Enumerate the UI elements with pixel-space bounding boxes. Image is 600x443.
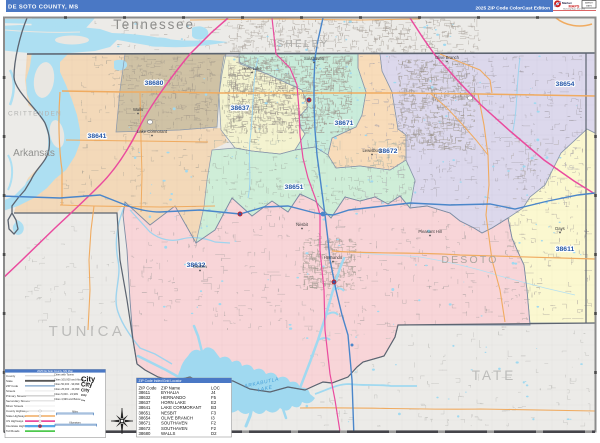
svg-text:Nesbit: Nesbit bbox=[296, 222, 309, 227]
svg-text:TUNICA: TUNICA bbox=[49, 323, 126, 340]
svg-text:38671: 38671 bbox=[335, 120, 354, 127]
svg-text:Lake Cormorant: Lake Cormorant bbox=[137, 129, 168, 134]
svg-text:Hernando: Hernando bbox=[324, 255, 343, 260]
svg-text:Cities 100,000 and Above: Cities 100,000 and Above bbox=[54, 377, 84, 381]
svg-text:38611: 38611 bbox=[556, 246, 575, 253]
svg-text:2025 ZIP Code ColorCast Editio: 2025 ZIP Code ColorCast Edition bbox=[475, 5, 550, 11]
svg-text:Cities with Towns: Cities with Towns bbox=[54, 372, 75, 376]
svg-text:Miles: Miles bbox=[72, 410, 78, 413]
svg-text:38654: 38654 bbox=[556, 81, 575, 88]
svg-text:Olive Branch: Olive Branch bbox=[435, 55, 460, 60]
svg-text:ZIP Code Index/Grid Locator: ZIP Code Index/Grid Locator bbox=[139, 379, 183, 383]
svg-text:TATE: TATE bbox=[472, 368, 517, 383]
svg-text:Minor Streets: Minor Streets bbox=[6, 404, 24, 408]
svg-text:Cities 50,000 - 99,999: Cities 50,000 - 99,999 bbox=[54, 382, 80, 386]
svg-text:City: City bbox=[81, 393, 87, 397]
svg-text:WALLS: WALLS bbox=[161, 431, 176, 436]
svg-text:Cities 4,999 and Below: Cities 4,999 and Below bbox=[54, 397, 81, 401]
svg-text:Cities 25,000 - 49,999: Cities 25,000 - 49,999 bbox=[54, 387, 80, 391]
svg-text:Pleasant Hill: Pleasant Hill bbox=[418, 229, 441, 234]
svg-text:Cities 5,000 - 24,999: Cities 5,000 - 24,999 bbox=[54, 392, 78, 396]
svg-text:City: City bbox=[81, 387, 90, 392]
svg-text:38680: 38680 bbox=[139, 431, 152, 436]
svg-text:State Highways: State Highways bbox=[6, 414, 27, 418]
svg-text:Marketing Maps That Work: Marketing Maps That Work bbox=[563, 8, 585, 11]
svg-text:Streets: Streets bbox=[6, 389, 16, 393]
svg-text:Southaven: Southaven bbox=[304, 56, 325, 61]
svg-text:Eudora: Eudora bbox=[193, 264, 207, 269]
svg-text:38637: 38637 bbox=[231, 105, 250, 112]
svg-text:US Highways: US Highways bbox=[6, 419, 24, 423]
svg-text:Days: Days bbox=[555, 226, 565, 231]
svg-text:State: State bbox=[6, 379, 13, 383]
svg-text:CRITTENDEN: CRITTENDEN bbox=[8, 111, 62, 118]
svg-text:38680: 38680 bbox=[145, 80, 164, 87]
svg-text:SHELBY: SHELBY bbox=[277, 39, 330, 50]
svg-text:Arkansas: Arkansas bbox=[13, 148, 55, 159]
svg-text:MARKET: MARKET bbox=[585, 2, 594, 5]
svg-text:Horn Lake: Horn Lake bbox=[242, 66, 262, 71]
svg-text:ZIP Code: ZIP Code bbox=[6, 384, 19, 388]
svg-text:D2: D2 bbox=[211, 431, 217, 436]
svg-text:38641: 38641 bbox=[88, 133, 107, 140]
svg-text:DESOTO: DESOTO bbox=[441, 254, 498, 266]
svg-text:Walls: Walls bbox=[133, 107, 143, 112]
svg-text:Toll Roads: Toll Roads bbox=[6, 429, 20, 433]
svg-text:38651: 38651 bbox=[285, 184, 304, 191]
svg-text:DE SOTO COUNTY, MS: DE SOTO COUNTY, MS bbox=[8, 5, 79, 11]
svg-text:MAPS: MAPS bbox=[586, 5, 592, 8]
svg-text:Lewisburg: Lewisburg bbox=[362, 148, 382, 153]
svg-text:Kilometers: Kilometers bbox=[69, 422, 81, 425]
svg-text:Primary Streets: Primary Streets bbox=[6, 394, 26, 398]
svg-text:County: County bbox=[6, 374, 16, 378]
svg-text:Tennessee: Tennessee bbox=[113, 17, 195, 32]
